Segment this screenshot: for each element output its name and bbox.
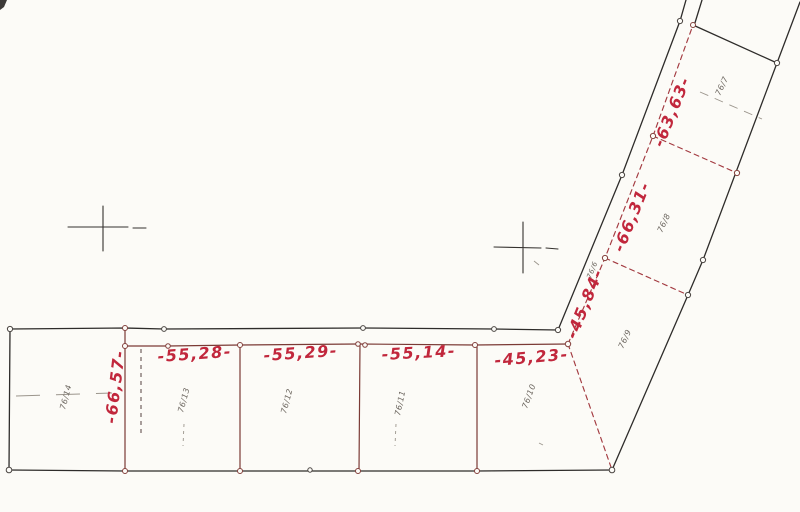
outer-boundary-right bbox=[612, 63, 777, 470]
vertex-marker bbox=[555, 327, 560, 332]
vertex-marker bbox=[123, 469, 128, 474]
vertex-marker bbox=[363, 343, 368, 348]
parcel-label-76-9: 76/9 bbox=[617, 328, 634, 350]
mark-76-13 bbox=[183, 424, 184, 446]
cadastral-sketch-page: -66,57- -55,28- -55,29- -55,14- -45,23- … bbox=[0, 0, 800, 512]
vertex-marker bbox=[691, 23, 696, 28]
vertex-marker bbox=[700, 257, 705, 262]
survey-crosses bbox=[68, 206, 558, 273]
vertex-marker bbox=[361, 326, 366, 331]
divider-76-10-76-9 bbox=[568, 344, 612, 470]
vertex-marker bbox=[602, 255, 607, 260]
survey-cross-left bbox=[68, 206, 146, 251]
vertex-marker bbox=[7, 326, 12, 331]
vertex-marker bbox=[774, 60, 779, 65]
outer-boundary-topright bbox=[777, 2, 800, 63]
measurement-frontage-76-11: -55,14- bbox=[381, 341, 456, 364]
measurement-frontage-76-10: -45,23- bbox=[494, 345, 570, 370]
strip-left-boundary bbox=[9, 329, 10, 470]
scan-corner-artifact bbox=[0, 0, 7, 10]
vertex-marker bbox=[356, 469, 361, 474]
divider-76-12-76-11 bbox=[359, 344, 360, 471]
vertex-marker bbox=[356, 342, 361, 347]
road-right-boundary-top bbox=[694, 0, 702, 26]
parcel-label-76-7: 76/7 bbox=[714, 75, 731, 97]
vertex-marker bbox=[162, 327, 167, 332]
vertex-marker bbox=[677, 18, 682, 23]
measurement-frontage-76-13: -55,28- bbox=[157, 342, 233, 366]
parcel-label-76-14: 76/14 bbox=[58, 383, 73, 410]
centerline-76-7 bbox=[700, 92, 762, 119]
parcel-label-76-8: 76/8 bbox=[656, 212, 673, 234]
vertex-marker bbox=[473, 343, 478, 348]
vertex-marker bbox=[475, 469, 480, 474]
diagonal-dashed-boundaries bbox=[568, 25, 737, 470]
survey-drawing: -66,57- -55,28- -55,29- -55,14- -45,23- … bbox=[0, 0, 800, 512]
handwritten-measurements: -66,57- -55,28- -55,29- -55,14- -45,23- … bbox=[101, 73, 694, 424]
parcel-76-7-top-boundary bbox=[693, 25, 777, 63]
strip-top-boundary bbox=[10, 328, 558, 330]
vertex-marker bbox=[619, 172, 624, 177]
mark-76-11 bbox=[395, 424, 396, 446]
divider-76-9-76-8 bbox=[605, 258, 688, 295]
small-mark bbox=[539, 443, 543, 445]
vertex-marker bbox=[734, 170, 739, 175]
road-left-boundary bbox=[558, 0, 686, 330]
measurement-frontage-76-12: -55,29- bbox=[263, 341, 339, 365]
parcel-label-76-12: 76/12 bbox=[279, 387, 294, 414]
vertex-marker bbox=[123, 326, 128, 331]
vertex-marker bbox=[238, 343, 243, 348]
parcel-label-76-10: 76/10 bbox=[520, 383, 537, 410]
vertex-marker bbox=[123, 344, 128, 349]
vertex-marker bbox=[492, 327, 497, 332]
parcel-label-76-11: 76/11 bbox=[393, 390, 407, 417]
vertex-marker bbox=[609, 467, 615, 473]
vertex-marker bbox=[685, 292, 690, 297]
vertex-marker bbox=[6, 467, 12, 473]
faint-marks bbox=[16, 92, 762, 446]
parcel-label-76-13: 76/13 bbox=[176, 386, 191, 413]
survey-cross-right bbox=[494, 222, 558, 273]
cross-tick-mark bbox=[534, 261, 539, 265]
vertex-marker bbox=[308, 468, 312, 472]
vertex-marker bbox=[238, 469, 243, 474]
